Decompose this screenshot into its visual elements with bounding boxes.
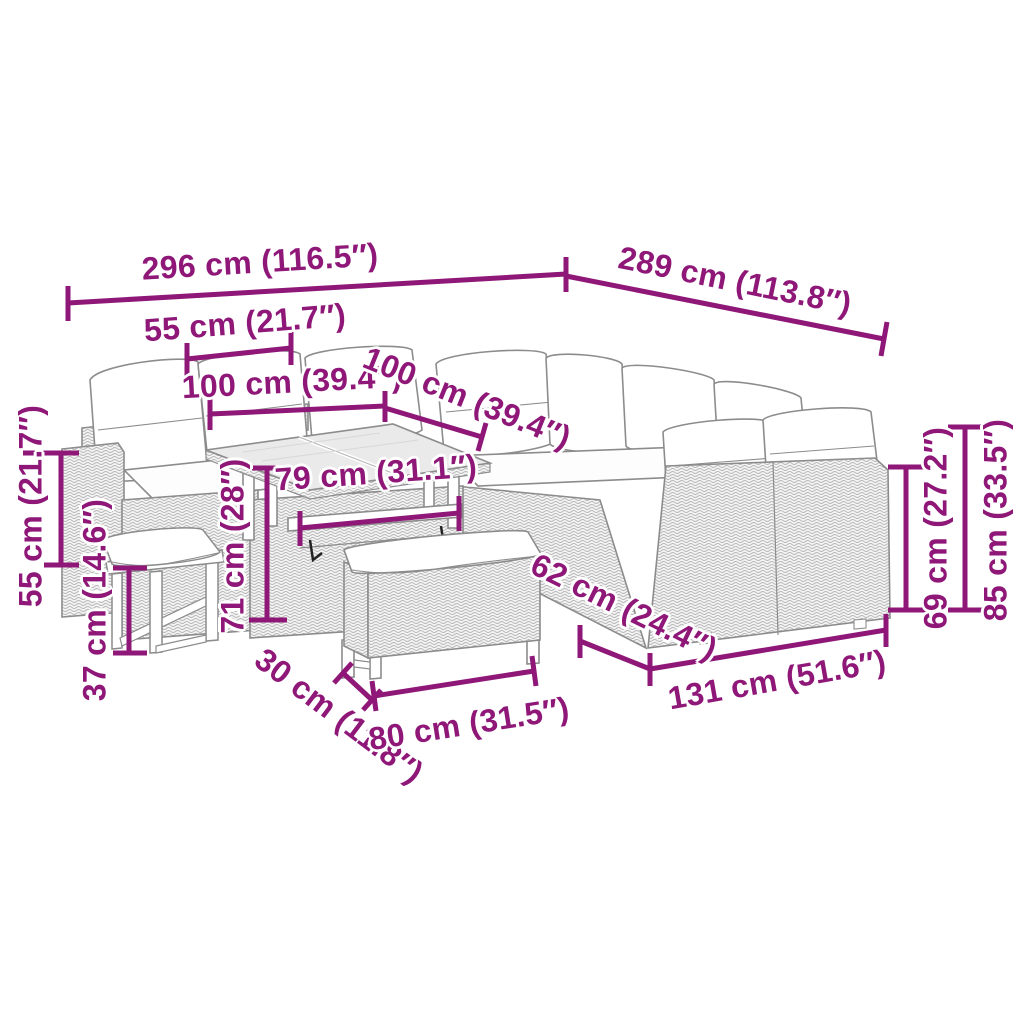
sofa-foot: [854, 619, 866, 629]
sofa-foot: [700, 633, 712, 644]
furniture-line-art: [0, 0, 1024, 1024]
back-cushion: [546, 354, 630, 452]
bench-rail: [354, 660, 370, 669]
right-sofa: [648, 408, 890, 648]
dimension-diagram: 296 cm (116.5″) 289 cm (113.8″) 55 cm (2…: [0, 0, 1024, 1024]
stool-leg: [150, 571, 162, 653]
stool-leg: [206, 561, 218, 641]
bench-side: [344, 562, 368, 658]
